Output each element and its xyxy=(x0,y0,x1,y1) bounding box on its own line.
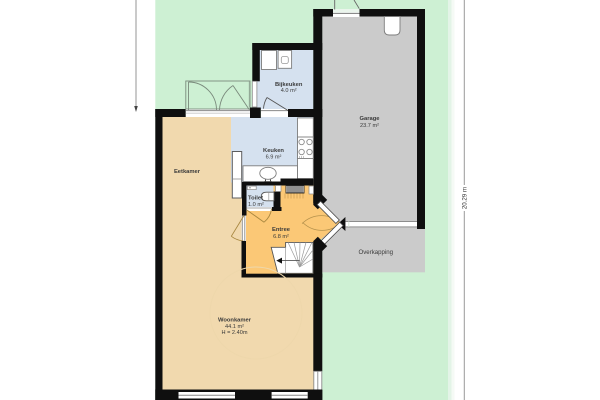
svg-text:Garage: Garage xyxy=(360,116,381,122)
svg-text:Entree: Entree xyxy=(272,227,291,233)
svg-text:Eetkamer: Eetkamer xyxy=(174,169,201,175)
svg-text:6.9 m²: 6.9 m² xyxy=(266,155,282,161)
svg-text:23.7 m²: 23.7 m² xyxy=(360,123,379,129)
svg-text:1.0 m²: 1.0 m² xyxy=(248,202,264,208)
svg-text:6.8 m²: 6.8 m² xyxy=(273,234,289,240)
svg-text:Toilet: Toilet xyxy=(248,196,263,202)
svg-text:20.29 m: 20.29 m xyxy=(462,187,469,209)
svg-text:44.1 m²: 44.1 m² xyxy=(225,324,244,330)
svg-text:Woonkamer: Woonkamer xyxy=(218,318,252,324)
svg-text:Overkapping: Overkapping xyxy=(359,249,394,256)
svg-text:4.0 m²: 4.0 m² xyxy=(281,88,297,94)
svg-text:H = 2.40m: H = 2.40m xyxy=(222,330,248,336)
svg-text:Keuken: Keuken xyxy=(263,148,284,154)
